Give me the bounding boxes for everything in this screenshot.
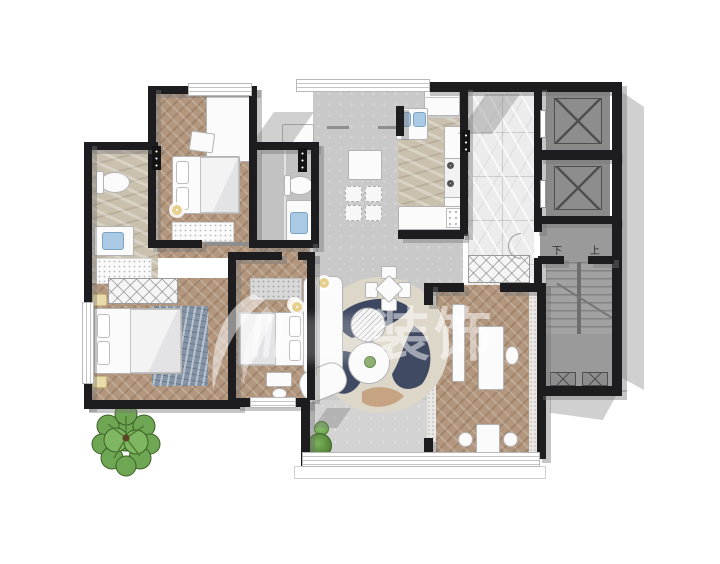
fridge-line [424, 97, 460, 98]
wall-stair-top-left [538, 256, 564, 264]
dining-chair [365, 205, 382, 221]
elevator-door-1 [540, 110, 546, 138]
study-console [452, 304, 465, 382]
wall-bath-top [256, 142, 316, 150]
master-nightstand-1 [92, 294, 107, 306]
kitchen-sink-2 [413, 112, 426, 127]
dining-chair [365, 186, 382, 202]
stair-flight-left [546, 262, 577, 334]
wall-kitchen-left-stub [396, 106, 404, 136]
study-right-track [529, 292, 537, 452]
bedroomTL-blanket [200, 157, 239, 213]
masterbath-sink [102, 232, 124, 250]
wall-master-bottom [84, 400, 240, 409]
wall-study-stair-divider [537, 283, 546, 459]
bedroom2-pillow-1 [289, 316, 301, 337]
wall-kitchen-bottom [398, 230, 464, 239]
wall-stair-top-right [588, 256, 614, 264]
entry-closet [468, 255, 530, 283]
study-chair [505, 346, 519, 365]
balcony-outer-apron [294, 466, 546, 479]
study-stool-1 [458, 432, 473, 447]
masterbath-toilet-tank [96, 171, 104, 194]
living-top-window [296, 79, 430, 92]
master-pillow-1 [97, 314, 110, 338]
wall-bath-right [311, 142, 319, 248]
bedroomTL-window [188, 83, 252, 96]
master-nightstand-2 [92, 376, 107, 388]
pipe-shaft-right-x [582, 372, 608, 386]
wall-master-bedroom2-divider [228, 252, 236, 402]
master-pillow-2 [97, 341, 110, 365]
wall-hall-top-left [152, 240, 202, 248]
bedroomTL-lamp-stool [172, 205, 182, 215]
master-blanket [130, 309, 181, 373]
dining-table [348, 150, 382, 180]
bedroom2-desk [266, 372, 292, 387]
fridge [424, 88, 460, 116]
bedroom2-pillow-2 [289, 340, 301, 361]
stove-burner-1 [447, 162, 454, 169]
dining-chair [345, 186, 362, 202]
floor-lamp-1 [319, 278, 329, 288]
wall-stair-bottom [538, 386, 622, 396]
wall-top-main [425, 82, 616, 92]
bedroom2-window [250, 397, 296, 408]
balcony-window-wall [302, 452, 540, 467]
bath-toilet-tank [284, 175, 291, 196]
wall-bedroom2-living-divider [307, 252, 315, 400]
coffee-table-hatched [349, 306, 387, 344]
stove-burner-2 [447, 180, 454, 187]
sliding-door-bar [204, 242, 252, 246]
table-plant [364, 356, 376, 368]
bedroom2-rug [250, 278, 302, 300]
study-desk [478, 326, 504, 390]
floor-plan: 下 上 装饰 [0, 0, 720, 564]
wall-panel-dots-2 [298, 148, 307, 172]
pipe-shaft-left-x [550, 372, 576, 386]
bedroomTL-pouf [189, 130, 216, 153]
shadow-right-outer [622, 92, 644, 390]
bath-cabinet [282, 124, 314, 144]
wall-shaft-divider-1 [538, 150, 618, 160]
dining-chair [345, 205, 362, 221]
wall-right-outer [612, 82, 622, 388]
elevator-car-2-x [554, 166, 602, 210]
wall-bedroom2-top-left [232, 252, 282, 260]
bath-sink [290, 212, 308, 234]
elevator-car-1-x [554, 98, 602, 144]
study-small-table [476, 424, 500, 454]
stair-up-label: 上 [590, 247, 600, 257]
floor-lamp-2 [292, 302, 302, 312]
bedroom2-blanket [239, 313, 276, 365]
wall-hall-top-right [255, 240, 313, 248]
stair-down-label: 下 [552, 247, 562, 257]
wall-shaft-divider-2 [538, 216, 618, 224]
wall-panel-dots-1 [152, 146, 161, 170]
bedroomTL-pillow-1 [176, 161, 189, 184]
master-window [82, 302, 94, 384]
stair-flight-right [581, 262, 612, 334]
wall-kitchen-foyer-divider [460, 86, 468, 236]
master-wardrobe [108, 278, 178, 304]
wall-panel-dots-3 [462, 130, 470, 152]
elevator-door-2 [540, 180, 546, 208]
masterbath-toilet [100, 172, 130, 193]
shadow-bottom-stair [550, 396, 616, 420]
bedroomTL-rug [172, 222, 234, 242]
wall-masterbath-top [86, 142, 158, 150]
wall-study-left-stub-top [424, 283, 433, 305]
study-stool-2 [503, 432, 518, 447]
living-beam-left [327, 126, 349, 129]
wall-bath-left [249, 142, 257, 248]
